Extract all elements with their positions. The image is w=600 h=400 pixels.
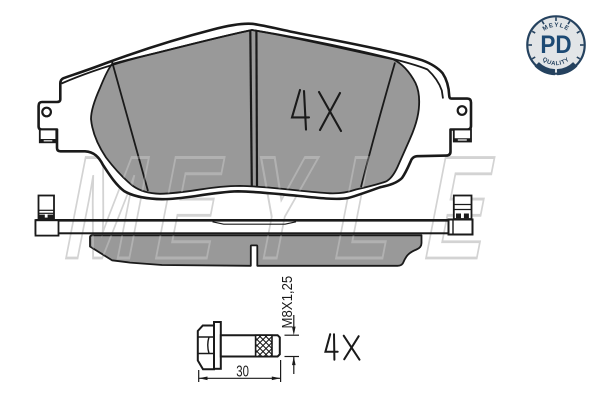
svg-text:30: 30 [236,363,249,380]
svg-text:M8X1,25: M8X1,25 [278,276,295,329]
svg-text:PD: PD [540,31,571,59]
